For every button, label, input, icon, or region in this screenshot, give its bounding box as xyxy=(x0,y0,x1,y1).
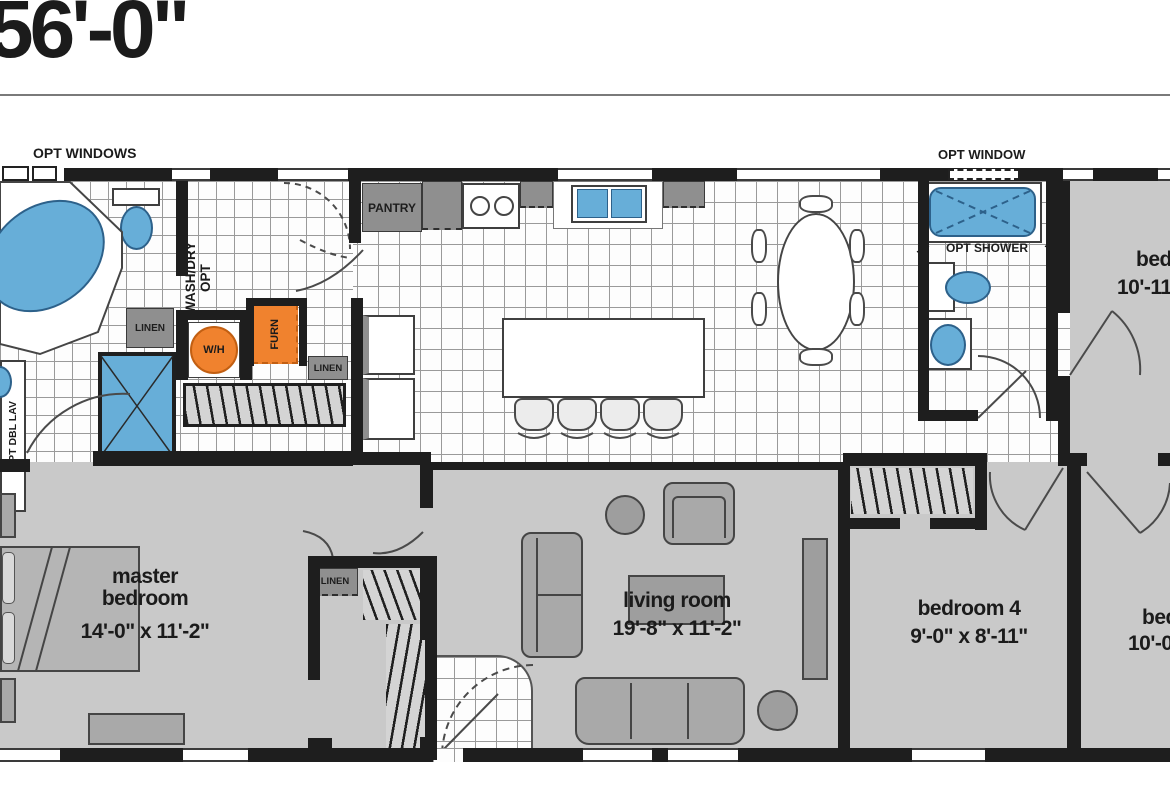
dining-chair-right-lower xyxy=(849,292,865,326)
wall-closet4-bottom-left xyxy=(843,518,900,529)
opt-window-dashed xyxy=(948,169,1020,180)
linen-hall-label: LINEN xyxy=(314,363,343,374)
kitchen-counter-left xyxy=(422,181,462,230)
wall-bath2-left xyxy=(918,181,929,421)
bedroom2-label: bed xyxy=(1136,249,1170,271)
dining-chair-right-upper xyxy=(849,229,865,263)
living-room-name: living room xyxy=(623,589,731,612)
sink-basin-right xyxy=(611,189,642,218)
round-side-table-top xyxy=(605,495,645,535)
opt-shower-label: OPT SHOWER xyxy=(928,242,1046,255)
media-console xyxy=(802,538,828,680)
closet-rod-washdry xyxy=(183,383,346,427)
wall-mid-right xyxy=(1158,453,1170,466)
closet-rod-bedroom4 xyxy=(851,468,973,514)
kitchen-counter-right xyxy=(663,181,705,208)
toilet-tank xyxy=(112,188,160,206)
window-top-right xyxy=(1158,168,1170,181)
bedroom4-name: bedroom 4 xyxy=(918,597,1021,620)
bar-stool-3 xyxy=(600,398,640,431)
window-top-dining xyxy=(737,168,880,181)
bar-stool-2 xyxy=(557,398,597,431)
wall-mid-bath xyxy=(93,451,353,466)
plan-width-dimension: 56'-0" xyxy=(0,0,187,75)
sofa-cushion-line-1 xyxy=(630,683,632,739)
sofa xyxy=(575,677,745,745)
living-room-label: living room xyxy=(577,590,777,612)
wall-kitchen-left-upper xyxy=(349,181,361,243)
wall-bath2-right xyxy=(1046,181,1058,421)
bath2-tub xyxy=(929,187,1036,237)
master-bedroom-dims: 14'-0" x 11'-2" xyxy=(45,621,245,643)
sofa-cushion-line-2 xyxy=(687,683,689,739)
wall-mid-stub xyxy=(1060,453,1087,466)
linen-closet-hall: LINEN xyxy=(308,356,348,380)
bedroom3-dims-text: 10'-0 xyxy=(1128,632,1170,655)
dining-table xyxy=(777,213,855,351)
window-top-kitchen xyxy=(558,168,652,181)
living-room-dims: 19'-8" x 11'-2" xyxy=(567,618,787,640)
opt-window-label: OPT WINDOW xyxy=(938,148,1025,162)
sink-basin-left xyxy=(577,189,608,218)
window-bottom-5 xyxy=(912,748,985,762)
bedroom4-dims: 9'-0" x 8'-11" xyxy=(859,626,1079,648)
bath2-toilet-bowl xyxy=(930,324,966,366)
wall-bedroom2-left-upper xyxy=(1058,181,1070,313)
dining-chair-top xyxy=(799,195,833,213)
kitchen-island xyxy=(502,318,705,398)
bedroom3-label: bed xyxy=(1142,607,1170,629)
entry-tile-floor xyxy=(433,655,533,750)
window-top-2 xyxy=(278,168,348,181)
burner-left xyxy=(470,196,490,216)
pantry: PANTRY xyxy=(362,183,422,232)
linen-closet-label: LINEN xyxy=(321,576,350,587)
wall-master-closet-right xyxy=(425,556,437,760)
wall-living-bedroom4 xyxy=(838,462,850,760)
armchair-back-line xyxy=(672,496,726,538)
wall-master-closet-left xyxy=(308,568,320,680)
bar-stool-4 xyxy=(643,398,683,431)
wall-mid-left xyxy=(0,459,30,472)
bedroom3-dims: 10'-0 xyxy=(1128,633,1170,655)
dresser xyxy=(88,713,185,745)
dining-chair-left-lower xyxy=(751,292,767,326)
bedroom2-name: bed xyxy=(1136,248,1170,271)
bar-stool-1 xyxy=(514,398,554,431)
furnace: FURN xyxy=(252,304,298,364)
window-bottom-1 xyxy=(0,748,60,762)
refrigerator xyxy=(362,315,415,375)
bedroom4-label: bedroom 4 xyxy=(869,598,1069,620)
closet-rod-master-top xyxy=(363,570,425,620)
wall-bath2-bottom xyxy=(918,410,978,421)
entry-door-gap xyxy=(433,748,463,762)
kitchen-counter-mid xyxy=(520,181,553,208)
linen-closet-bath: LINEN xyxy=(126,308,174,348)
loveseat-back-line xyxy=(536,538,538,652)
toilet-bowl xyxy=(120,206,153,250)
wall-bath-washdry xyxy=(176,181,188,276)
furnace-label: FURN xyxy=(269,319,281,350)
bedroom3-name: bed xyxy=(1142,606,1170,629)
wall-living-top xyxy=(431,462,850,470)
round-side-table-bottom xyxy=(757,690,798,731)
wall-kitchen-left-lower xyxy=(351,298,363,462)
wall-living-left-1 xyxy=(420,462,433,508)
pillow-bottom xyxy=(2,612,15,664)
wall-master-closet-stub xyxy=(308,738,332,760)
bedroom2-carpet xyxy=(1070,181,1170,466)
wall-furn-left xyxy=(246,298,254,366)
master-bedroom-dims-text: 14'-0" x 11'-2" xyxy=(81,620,210,643)
wall-master-closet-top xyxy=(308,556,437,568)
window-bottom-2 xyxy=(183,748,248,762)
master-bedroom-name: master bedroom xyxy=(102,565,188,610)
water-heater: W/H xyxy=(190,326,238,374)
opt-windows-label: OPT WINDOWS xyxy=(33,146,136,161)
linen-bath-label: LINEN xyxy=(135,323,165,334)
nightstand-bottom xyxy=(0,678,16,723)
bath2-sink xyxy=(945,271,991,304)
pillow-top xyxy=(2,552,15,604)
bedroom4-dims-text: 9'-0" x 8'-11" xyxy=(910,625,1027,648)
master-bedroom-label: master bedroom xyxy=(85,566,205,610)
bedroom2-dims: 10'-11 xyxy=(1117,277,1170,299)
wall-furn-top xyxy=(246,298,307,306)
window-top-bedroom2 xyxy=(1063,168,1093,181)
living-room-dims-text: 19'-8" x 11'-2" xyxy=(613,617,742,640)
opt-window-frame-1 xyxy=(2,166,29,181)
dining-chair-bottom xyxy=(799,348,833,366)
loveseat-cushion-line xyxy=(536,594,581,596)
floorplan-page: 56'-0" OPT WINDOWS OPT WINDOW OPT DBL LA… xyxy=(0,0,1170,785)
nightstand-top xyxy=(0,493,16,538)
dining-chair-left-upper xyxy=(751,229,767,263)
bedroom2-dims-text: 10'-11 xyxy=(1117,276,1170,299)
closet-rod-master-side xyxy=(386,624,425,748)
kitchen-cabinet xyxy=(362,378,415,440)
wall-furn-right xyxy=(299,298,307,366)
pantry-label: PANTRY xyxy=(368,201,416,215)
wall-bedroom4-bedroom3 xyxy=(1067,466,1081,760)
opt-window-frame-2 xyxy=(32,166,57,181)
divider-line xyxy=(0,94,1170,96)
wall-wh-left xyxy=(176,310,188,380)
window-top-1 xyxy=(172,168,210,181)
shower xyxy=(98,352,176,460)
water-heater-label: W/H xyxy=(203,344,224,356)
window-bottom-3 xyxy=(583,748,652,762)
wall-closet4-top xyxy=(843,453,987,466)
window-bottom-4 xyxy=(668,748,738,762)
burner-right xyxy=(494,196,514,216)
wall-closet4-bottom-right xyxy=(930,518,987,529)
